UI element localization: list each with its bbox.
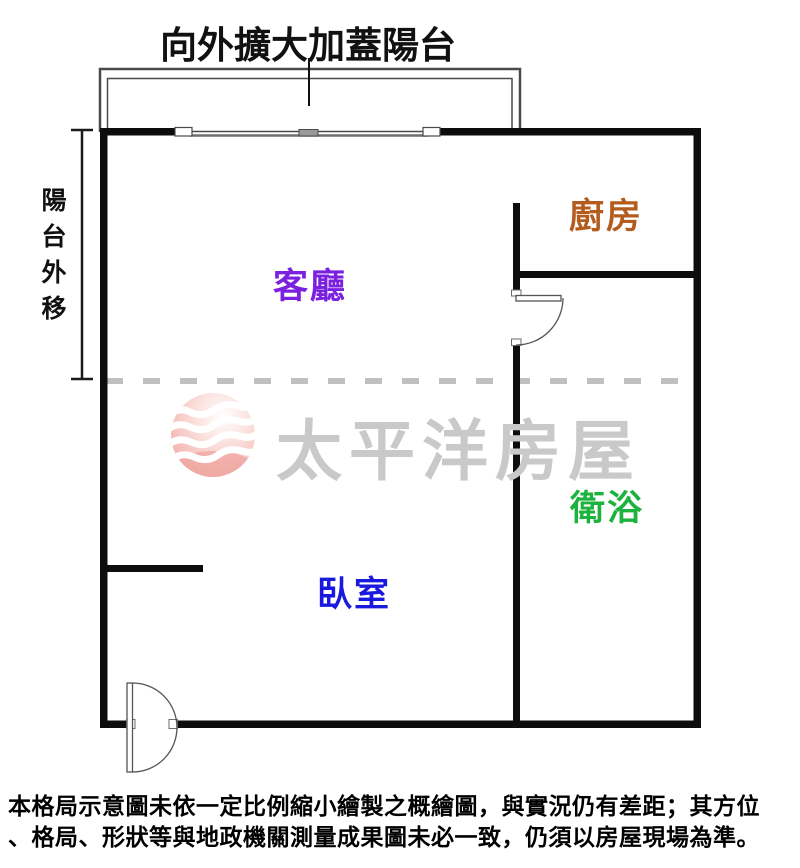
side-note-label: 陽台外移 [34,187,70,337]
top-note-label: 向外擴大加蓋陽台 [160,15,452,69]
side-dimension-line [71,130,93,379]
brand-logo-sphere-icon [166,393,260,485]
disclaimer-line-1: 本格局示意圖未依一定比例縮小繪製之概繪圖，與實況仍有差距；其方位 [8,793,760,819]
room-label-living: 客廳 [273,258,347,309]
disclaimer-text: 本格局示意圖未依一定比例縮小繪製之概繪圖，與實況仍有差距；其方位 、格局、形狀等… [8,791,794,853]
disclaimer-line-2: 、格局、形狀等與地政機關測量成果圖未必一致，仍須以房屋現場為準。 [8,824,760,850]
hallway-door [512,290,564,346]
top-wall-window [175,128,440,137]
room-label-kitchen: 廚房 [569,188,643,239]
room-label-bath: 衛浴 [570,480,644,531]
floorplan-canvas: 向外擴大加蓋陽台 陽台外移 太平洋房屋 客廳 廚房 衛浴 臥室 本格局示意圖未依… [0,0,800,868]
room-label-bedroom: 臥室 [317,566,391,617]
entry-door [127,683,178,772]
